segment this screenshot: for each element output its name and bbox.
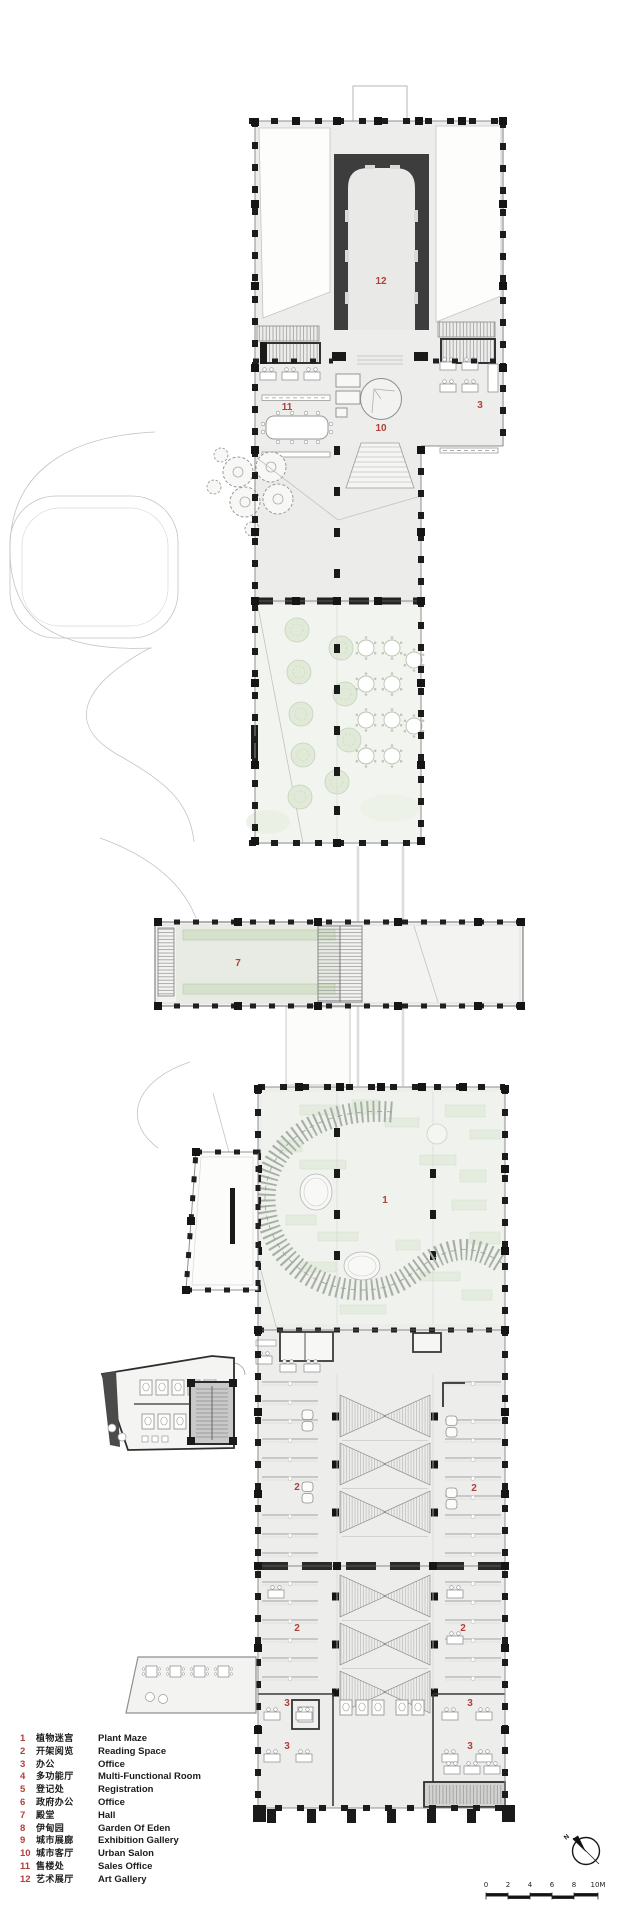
room-label-reading-c: 2 (294, 1623, 300, 1634)
legend-zh-label: 登记处 (36, 1783, 98, 1796)
legend-zh-label: 城市客厅 (36, 1847, 98, 1860)
scale-tick-4: 4 (528, 1881, 533, 1889)
building-top (207, 86, 507, 847)
legend-en-label: Urban Salon (98, 1848, 154, 1861)
room-label-reading-b: 2 (471, 1483, 477, 1494)
legend-zh-label: 多功能厅 (36, 1770, 98, 1783)
legend-en-label: Reading Space (98, 1746, 166, 1759)
scale-tick-2: 2 (506, 1881, 510, 1889)
room-label-office-b1: 3 (284, 1698, 290, 1709)
legend-number: 11 (20, 1861, 36, 1874)
legend-en-label: Plant Maze (98, 1733, 147, 1746)
room-label-hall: 7 (235, 958, 241, 969)
legend-number: 1 (20, 1733, 36, 1746)
legend-zh-label: 殿堂 (36, 1809, 98, 1822)
annex-south-west (126, 1657, 256, 1713)
hall-ladder-stair (158, 928, 174, 996)
legend-zh-label: 政府办公 (36, 1796, 98, 1809)
legend-number: 9 (20, 1835, 36, 1848)
legend-item-12: 12 艺术展厅 Art Gallery (20, 1873, 240, 1886)
floor-plan-drawing: 12 11 10 3 7 1 2 2 2 2 3 3 3 3 N 0 2 4 6… (0, 0, 628, 1920)
legend-item-11: 11 售楼处 Sales Office (20, 1860, 240, 1873)
room-label-urban-salon: 10 (375, 423, 387, 434)
legend-item-10: 10 城市客厅 Urban Salon (20, 1847, 240, 1860)
legend-en-label: Registration (98, 1784, 153, 1797)
legend-number: 7 (20, 1810, 36, 1823)
scale-tick-0: 0 (484, 1881, 488, 1889)
room-label-office-b4: 3 (467, 1741, 473, 1752)
floor-plan-page: 12 11 10 3 7 1 2 2 2 2 3 3 3 3 N 0 2 4 6… (0, 0, 628, 1920)
legend-zh-label: 植物迷宫 (36, 1732, 98, 1745)
legend-item-9: 9 城市展廊 Exhibition Gallery (20, 1834, 240, 1847)
roof-access-outline (353, 86, 407, 121)
legend-number: 4 (20, 1771, 36, 1784)
building-hall (154, 918, 525, 1010)
legend-en-label: Sales Office (98, 1861, 152, 1874)
legend-en-label: Art Gallery (98, 1874, 147, 1887)
legend-zh-label: 城市展廊 (36, 1834, 98, 1847)
scale-tick-6: 6 (550, 1881, 555, 1889)
legend-en-label: Office (98, 1797, 125, 1810)
legend-number: 10 (20, 1848, 36, 1861)
north-arrow: N (563, 1833, 600, 1865)
legend-item-1: 1 植物迷宫 Plant Maze (20, 1732, 240, 1745)
stair-west (257, 326, 320, 364)
room-art-gallery (334, 154, 429, 330)
legend-number: 12 (20, 1874, 36, 1887)
site-garden-paths (10, 432, 196, 1148)
legend-zh-label: 艺术展厅 (36, 1873, 98, 1886)
legend-en-label: Garden Of Eden (98, 1823, 170, 1836)
legend-en-label: Hall (98, 1810, 115, 1823)
room-label-office-b2: 3 (467, 1698, 473, 1709)
legend-item-5: 5 登记处 Registration (20, 1783, 240, 1796)
room-label-reading-a: 2 (294, 1482, 300, 1493)
legend-number: 6 (20, 1797, 36, 1810)
room-label-art-gallery: 12 (375, 276, 387, 287)
legend: 1 植物迷宫 Plant Maze 2 开架阅览 Reading Space 3… (20, 1732, 240, 1886)
legend-number: 2 (20, 1746, 36, 1759)
scale-tick-8: 8 (572, 1881, 576, 1889)
legend-item-4: 4 多功能厅 Multi-Functional Room (20, 1770, 240, 1783)
north-label: N (563, 1833, 571, 1842)
annex-maze-west (182, 1148, 258, 1294)
room-label-reading-d: 2 (460, 1623, 466, 1634)
room-label-sales-office: 11 (282, 402, 293, 413)
room-urban-salon (361, 379, 402, 420)
room-label-office-top: 3 (477, 400, 483, 411)
scale-tick-10m: 10M (591, 1881, 606, 1889)
legend-zh-label: 办公 (36, 1758, 98, 1771)
scale-bar: 0 2 4 6 8 10M (484, 1881, 606, 1900)
room-label-plant-maze: 1 (382, 1195, 388, 1206)
legend-number: 8 (20, 1823, 36, 1836)
room-label-office-b3: 3 (284, 1741, 290, 1752)
legend-item-3: 3 办公 Office (20, 1758, 240, 1771)
legend-zh-label: 售楼处 (36, 1860, 98, 1873)
legend-item-2: 2 开架阅览 Reading Space (20, 1745, 240, 1758)
legend-number: 5 (20, 1784, 36, 1797)
legend-item-6: 6 政府办公 Office (20, 1796, 240, 1809)
annex-stair-west (187, 1379, 237, 1445)
legend-en-label: Multi-Functional Room (98, 1771, 201, 1784)
legend-zh-label: 伊甸园 (36, 1822, 98, 1835)
legend-en-label: Exhibition Gallery (98, 1835, 179, 1848)
legend-number: 3 (20, 1759, 36, 1772)
legend-zh-label: 开架阅览 (36, 1745, 98, 1758)
legend-item-7: 7 殿堂 Hall (20, 1809, 240, 1822)
legend-item-8: 8 伊甸园 Garden Of Eden (20, 1822, 240, 1835)
legend-en-label: Office (98, 1759, 125, 1772)
stair-east (438, 322, 495, 363)
